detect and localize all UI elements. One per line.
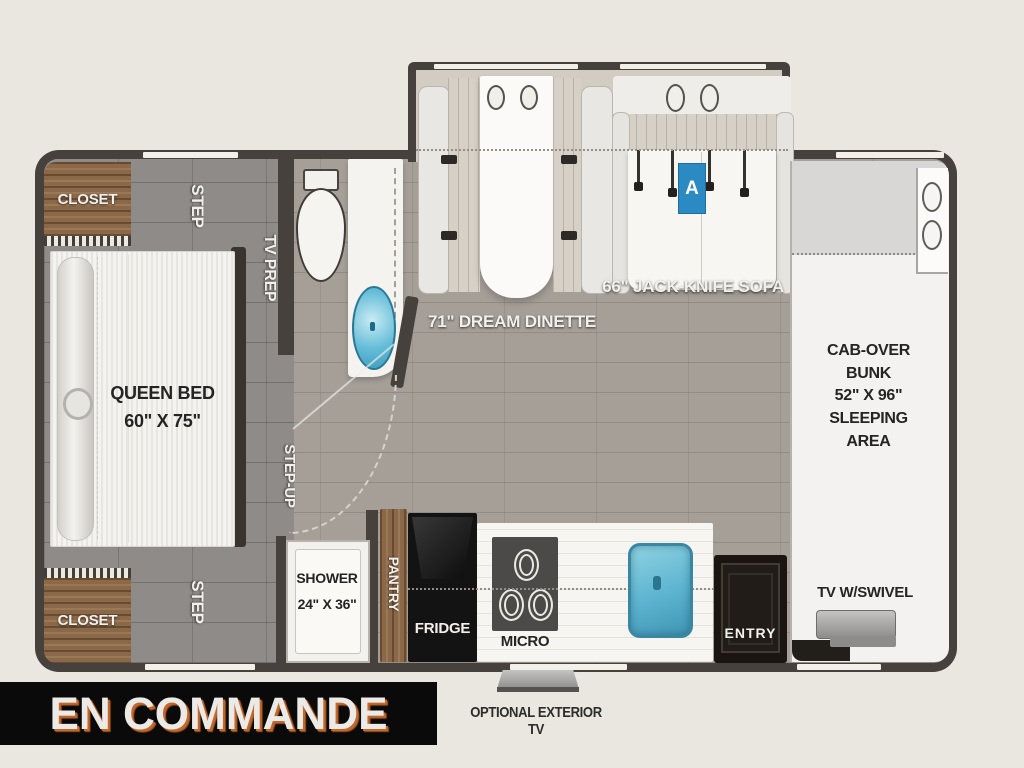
seatbelt-anchor-icon xyxy=(561,155,577,164)
seatbelt-icon xyxy=(671,150,674,190)
cupholder-icon xyxy=(700,84,719,112)
seatbelt-buckle-icon xyxy=(634,182,643,191)
kitchen-bottom-window xyxy=(510,664,627,670)
optional-exterior-tv-label: OPTIONAL EXTERIOR TV xyxy=(463,704,609,738)
seatbelt-anchor-icon xyxy=(441,155,457,164)
closet-top: CLOSET xyxy=(44,162,131,236)
fridge-top-highlight xyxy=(412,517,473,579)
option-badge-letter: A xyxy=(685,178,699,200)
dinette-seat-right xyxy=(553,78,581,292)
vanity-dash-edge xyxy=(394,168,396,318)
seatbelt-icon xyxy=(637,150,640,184)
kitchen-sink-icon xyxy=(628,543,693,638)
seatbelt-buckle-icon xyxy=(668,188,677,197)
closet-bottom-track xyxy=(44,568,131,578)
burner-icon xyxy=(514,549,539,581)
pantry-label: PANTRY xyxy=(384,529,402,639)
cab-top-window xyxy=(836,152,944,158)
dinette-bench-left xyxy=(418,86,450,294)
seatbelt-icon xyxy=(743,150,746,190)
closet-bottom-label: CLOSET xyxy=(58,612,118,629)
cupholder-icon xyxy=(666,84,685,112)
step-bottom-label: STEP xyxy=(187,542,207,662)
dinette-bench-right xyxy=(581,86,613,294)
slideout-window-left xyxy=(434,64,578,69)
queen-bed-label: QUEEN BED 60" X 75" xyxy=(95,380,230,436)
kitchen-sink-faucet xyxy=(653,576,661,590)
entry-label: ENTRY xyxy=(714,625,787,641)
status-banner-label: EN COMMANDE xyxy=(49,688,387,740)
bath-wall xyxy=(278,159,294,355)
cupholder-icon xyxy=(487,85,505,110)
dinette-seat-left xyxy=(448,78,480,292)
status-banner: EN COMMANDE xyxy=(0,682,437,745)
sofa-backrest xyxy=(616,114,788,152)
tv-swivel-label: TV W/SWIVEL xyxy=(790,584,940,601)
dinette-label: 71" DREAM DINETTE xyxy=(412,312,612,332)
closet-bottom: CLOSET xyxy=(44,578,131,663)
shower-label: SHOWER 24" X 36" xyxy=(288,566,366,618)
option-badge: A xyxy=(678,163,706,214)
rv-floorplan: A CAB-OVER BUNK 52" X 96" SLEEPING AREA … xyxy=(0,0,1024,768)
cupholder-icon xyxy=(922,182,942,212)
bath-sink-drain xyxy=(370,322,375,331)
burner-icon xyxy=(528,589,553,621)
cab-bottom-window xyxy=(797,664,881,670)
dinette-table xyxy=(480,76,553,298)
bedroom-bottom-window xyxy=(145,664,255,670)
seatbelt-anchor-icon xyxy=(561,231,577,240)
cab-over-label: CAB-OVER BUNK 52" X 96" SLEEPING AREA xyxy=(795,340,942,454)
burner-icon xyxy=(499,589,524,621)
shower-wall-left xyxy=(276,536,286,663)
entry-steps xyxy=(714,555,787,663)
sofa-label: 66" JACK-KNIFE SOFA xyxy=(593,277,793,297)
seatbelt-anchor-icon xyxy=(441,231,457,240)
bed-pillow-knot xyxy=(63,388,93,420)
cupholder-icon xyxy=(922,220,942,250)
seatbelt-buckle-icon xyxy=(740,188,749,197)
closet-top-track xyxy=(44,236,131,246)
micro-label: MICRO xyxy=(480,633,570,650)
step-top-label: STEP xyxy=(187,146,207,266)
swivel-tv-icon xyxy=(816,610,896,639)
closet-top-label: CLOSET xyxy=(58,191,118,208)
slideout-window-right xyxy=(620,64,766,69)
cupholder-icon xyxy=(520,85,538,110)
seatbelt-buckle-icon xyxy=(705,182,714,191)
seatbelt-icon xyxy=(708,150,711,184)
exterior-tv-base xyxy=(497,687,579,692)
swivel-tv-base xyxy=(830,636,896,647)
tv-prep-label: TV PREP xyxy=(258,203,278,333)
fridge-label: FRIDGE xyxy=(408,620,477,637)
slideout-edge-line xyxy=(416,149,788,151)
